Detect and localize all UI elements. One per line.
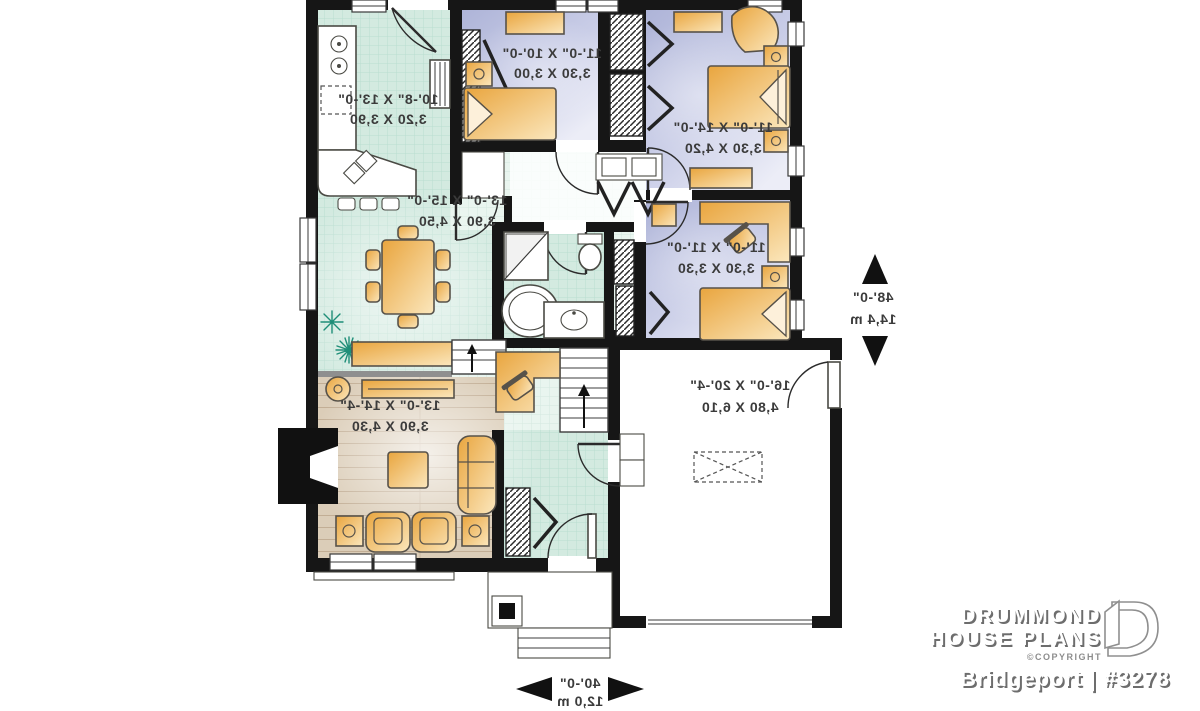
depth-imperial: 48'-0" [853,289,894,305]
brand-line2: HOUSE PLANS [930,628,1102,650]
floor-plan-drawing: 10'-8" X 13'-0" 3,20 X 3,90 11'-0" X 10'… [0,0,1200,711]
master-dresser-bottom [690,168,752,188]
bedroom2-dim-imperial: 11'-0" X 10'-0" [502,45,602,61]
garage-entry-opening [608,440,620,482]
porch [488,572,612,658]
fireplace [278,428,338,504]
plan-name: Bridgeport | #3278 [960,666,1170,691]
window-right-master-b [788,146,804,176]
porch-steps [518,628,610,658]
bedroom2-door-opening [556,140,598,152]
burner-dot [337,64,341,68]
foyer-closet [506,488,530,556]
window-top-kitchen [352,0,386,12]
arrow-down-icon [862,336,888,366]
window-sill-ledge [314,572,454,580]
vanity-sink [544,302,604,338]
living-dim-metric: 3,90 X 4,30 [351,418,428,434]
armchair [412,512,456,552]
copyright-label: ©COPYRIGHT [1027,652,1102,662]
closet-b [610,74,643,136]
branding-block: DRUMMOND DRUMMOND HOUSE PLANS HOUSE PLAN… [930,601,1172,693]
island-stool [360,198,377,210]
garage-dim-imperial: 16'-0" X 20'-4" [690,377,791,393]
bedroom3-nightstand [762,266,788,288]
end-table [336,516,363,546]
arrow-right-icon [608,677,644,701]
bedroom3-closet [616,286,634,336]
shower [504,232,548,280]
end-table [462,516,489,546]
main-staircase [560,348,608,432]
width-imperial: 40'-0" [560,675,601,691]
garage-dim-metric: 4,80 X 6,10 [701,399,778,415]
bedroom2-dim-metric: 3,30 X 3,00 [513,65,590,81]
master-dim-imperial: 11'-0" X 14'-0" [673,119,773,135]
bathroom-bottom-wall [492,338,620,348]
brand-line1: DRUMMOND [961,605,1102,627]
drummond-logo-icon [1105,601,1158,656]
window-top-bedroom2-b [588,0,618,12]
bedroom3-dim-imperial: 11'-0" X 11'-0" [666,239,765,255]
arrow-up-icon [862,254,888,284]
window-bottom-living-a [330,554,372,570]
dining-chair [398,226,418,239]
window-left-dining-a [300,218,316,262]
dining-chair [398,315,418,328]
dining-chair [366,282,380,302]
sofa [458,436,496,514]
bathroom-door-opening [544,220,586,234]
island-stool [338,198,355,210]
master-nightstand [764,46,788,68]
patio-door-opening [388,0,448,10]
dining-chair [436,282,450,302]
armchair [366,512,410,552]
closet-a [610,14,643,70]
plant [321,311,343,333]
floor-plan-page: 10'-8" X 13'-0" 3,20 X 3,90 11'-0" X 10'… [0,0,1200,711]
window-right-master-a [788,22,804,46]
island-stool [382,198,399,210]
garage-door-opening [646,616,812,628]
living-dining-halfwall [318,371,452,377]
window-left-dining-b [300,264,316,310]
bedroom3-bed [700,288,790,340]
dining-table [382,240,434,314]
linen-closet [614,240,634,284]
master-dresser-top [674,12,722,32]
bedroom2-dresser [506,12,564,34]
porch-column [499,603,515,619]
dining-chair [436,250,450,270]
arrow-left-icon [516,677,552,701]
kitchen-dim-imperial: 10'-8" X 13'-0" [338,91,439,107]
bedroom2-nightstand [466,62,492,86]
bedroom2-bottom-wall-b [598,140,646,152]
bedroom3-side-table [652,204,676,226]
toilet [578,234,602,270]
bedroom3-dim-metric: 3,30 X 3,30 [677,260,754,276]
overall-depth-dimension: 48'-0" 14,4 m [850,254,897,366]
window-top-bedroom2-a [556,0,586,12]
closet-spine-wall [598,0,610,140]
dining-chair [366,250,380,270]
coffee-table [388,452,428,488]
sofa-table [362,380,454,398]
buffet [352,342,452,366]
bathroom-right-wall [604,222,614,338]
overall-width-dimension: 40'-0" 12,0 m [516,675,644,709]
living-dim-imperial: 13'-0" X 14'-4" [340,397,441,413]
dining-dim-imperial: 13'-0" X 15'-0" [407,192,508,208]
bedroom2-bed [464,88,556,140]
window-bottom-living-b [374,554,416,570]
master-dim-metric: 3,30 X 4,20 [684,140,761,156]
dining-dim-metric: 3,90 X 4,50 [418,213,495,229]
burner-dot [337,42,341,46]
width-metric: 12,0 m [557,693,604,709]
kitchen-dim-metric: 3,20 X 3,90 [349,111,426,127]
bathroom-left-wall [492,222,504,348]
kitchen-bedroom2-wall [450,0,462,204]
depth-metric: 14,4 m [850,311,897,327]
